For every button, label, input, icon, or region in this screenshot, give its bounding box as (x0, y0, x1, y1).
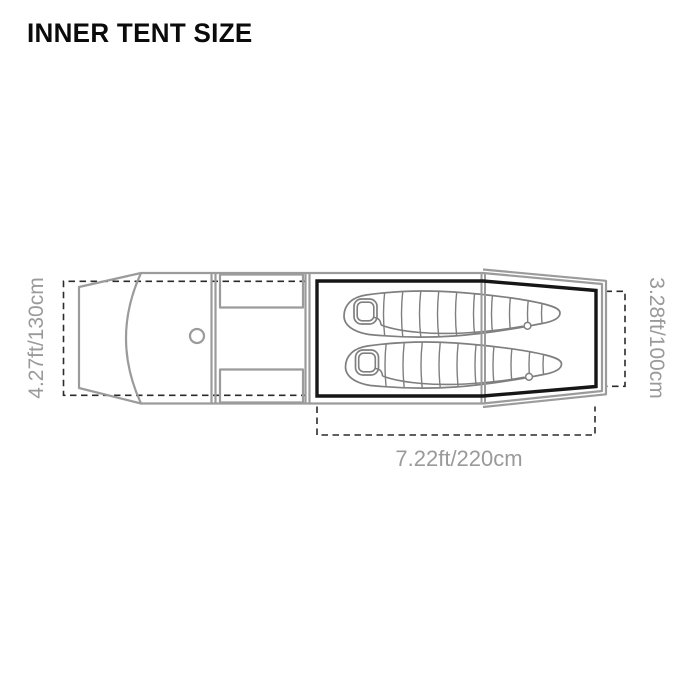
dimension-label-bottom: 7.22ft/220cm (349, 446, 569, 472)
door-arc (126, 273, 141, 404)
tent-diagram (0, 0, 700, 700)
divider-right (306, 273, 310, 404)
storage-pocket-bottom (220, 370, 303, 403)
dimension-label-left: 4.27ft/130cm (25, 253, 49, 423)
dimension-label-right: 3.28ft/100cm (644, 253, 668, 423)
left-dimension-box (64, 281, 307, 395)
divider-left (212, 273, 216, 404)
storage-pocket-top (220, 275, 303, 308)
tent-size-figure: INNER TENT SIZE (0, 0, 700, 700)
bottom-dimension-bracket (317, 407, 595, 436)
right-dimension-bracket (606, 291, 626, 386)
vent-circle (190, 329, 204, 343)
